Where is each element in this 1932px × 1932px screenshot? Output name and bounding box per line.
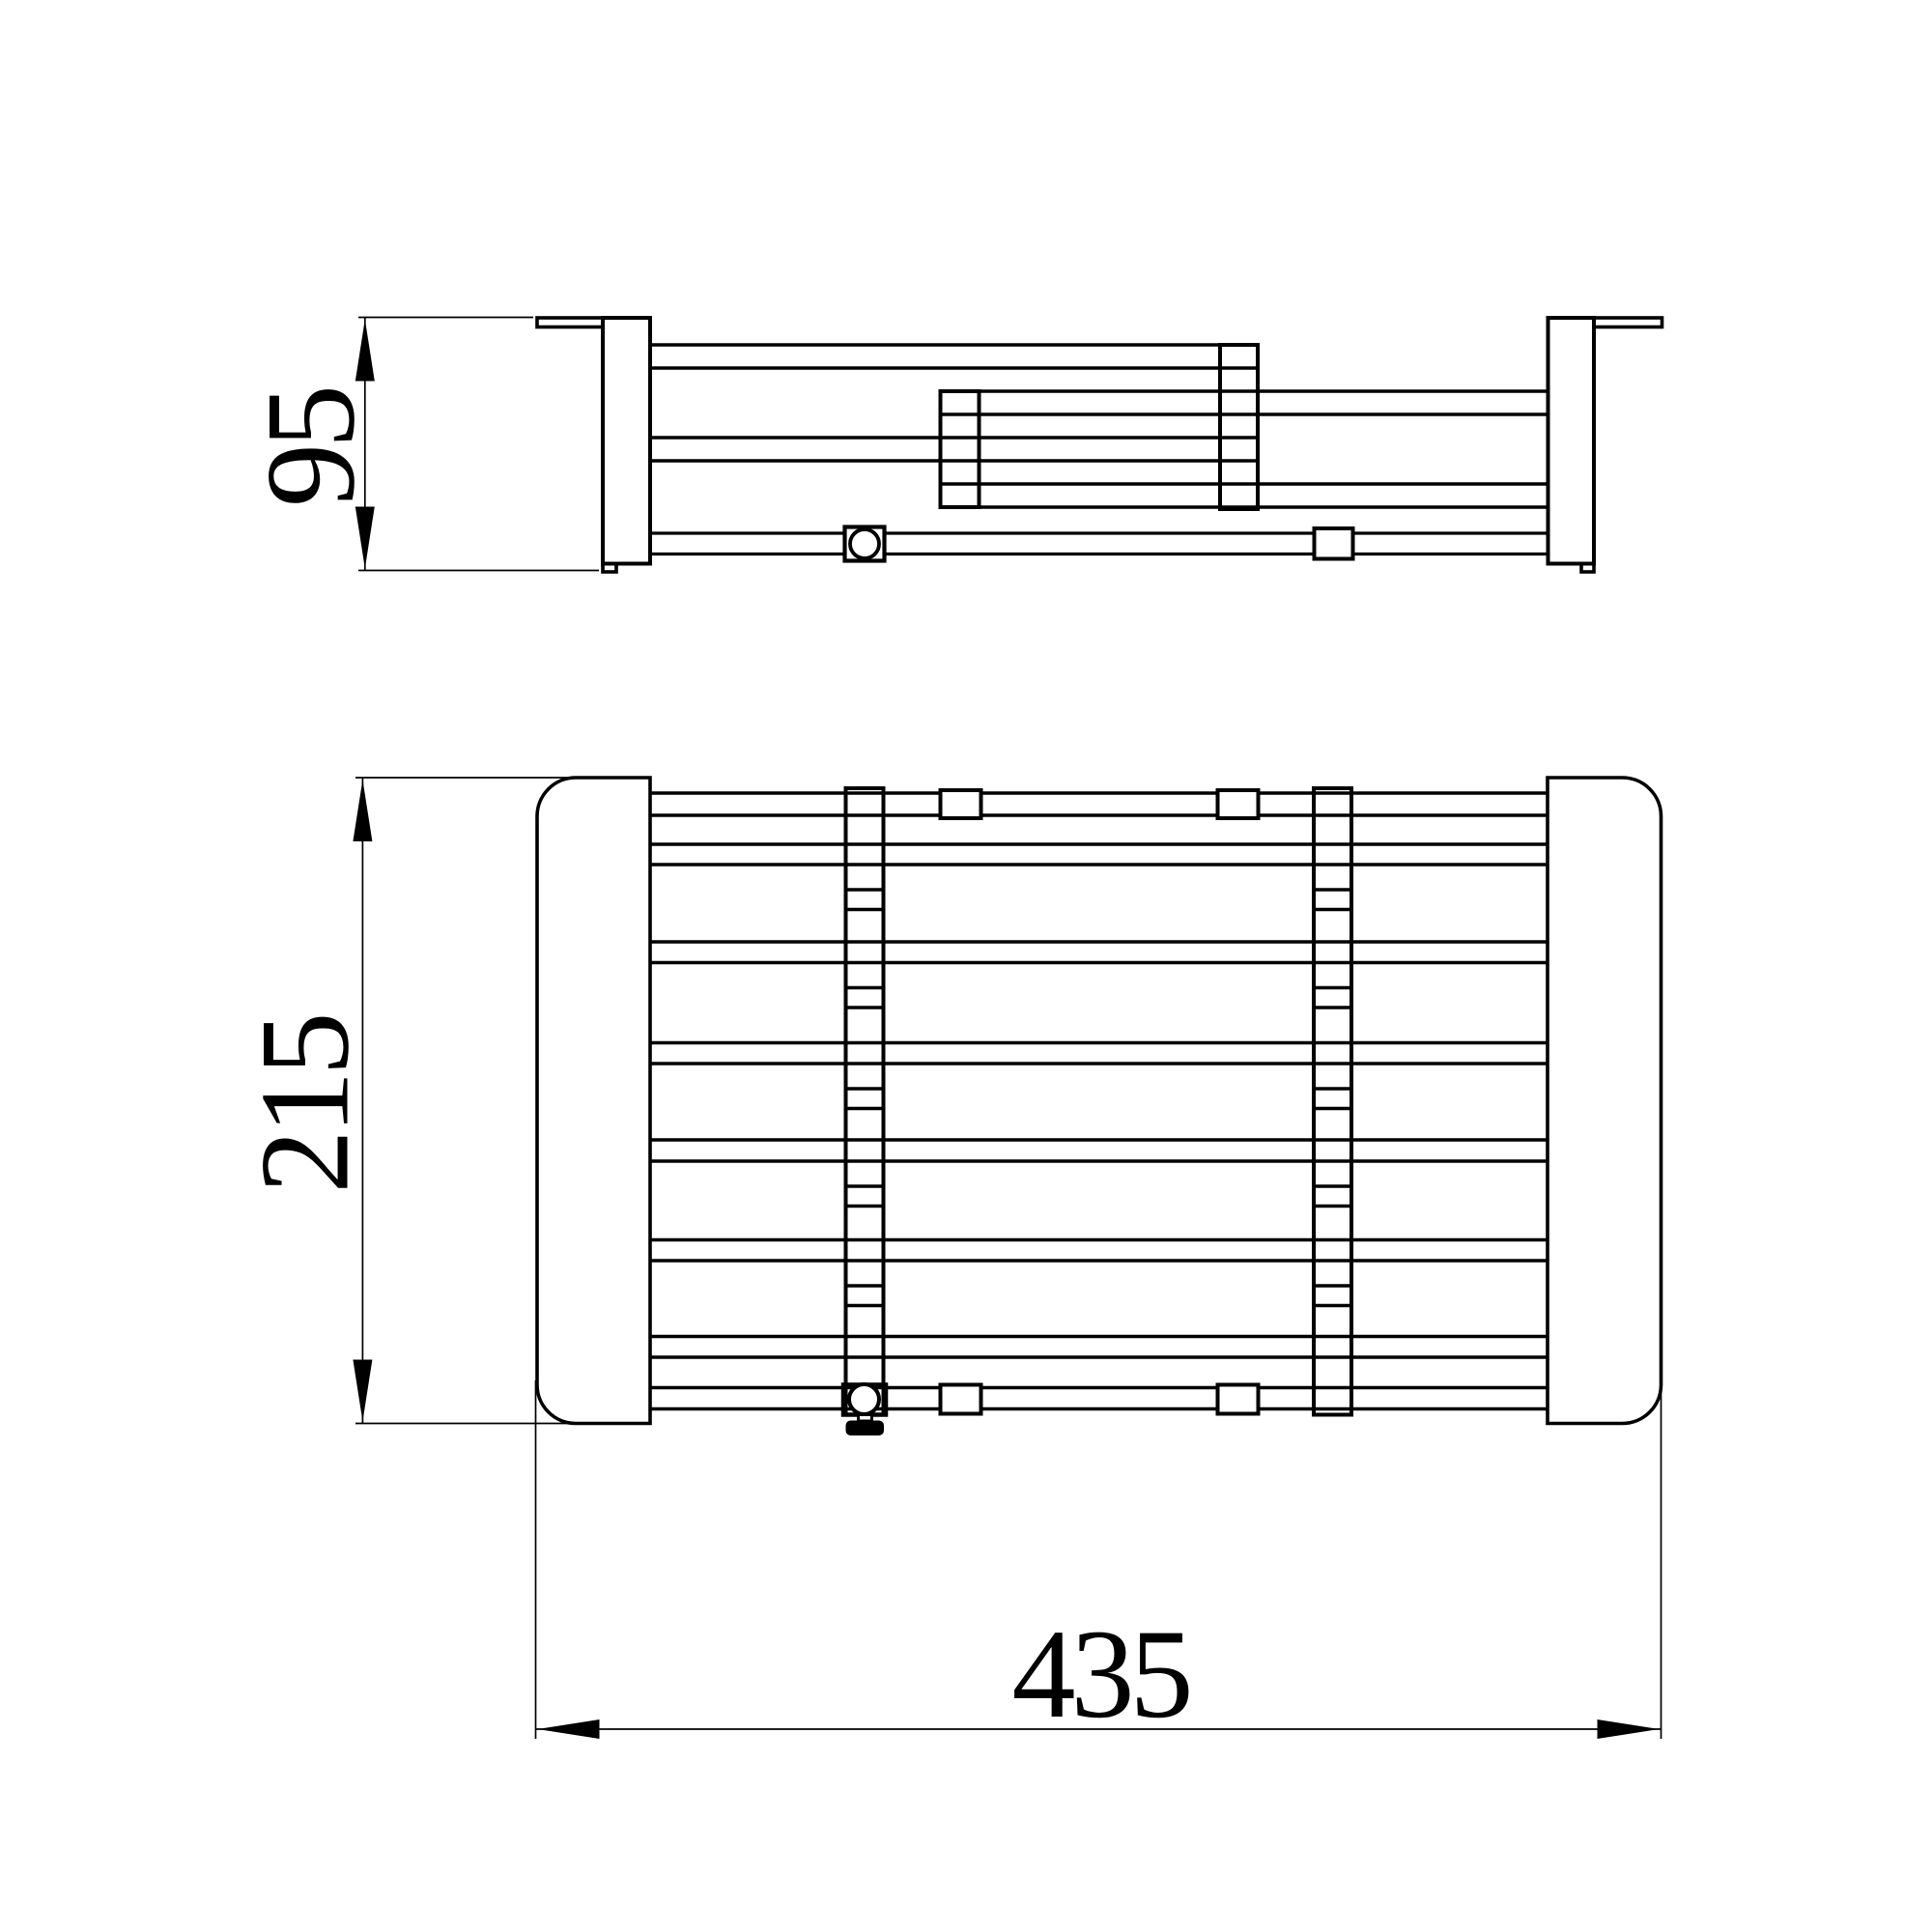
svg-text:435: 435 [1012,1603,1189,1745]
svg-text:95: 95 [240,389,382,507]
svg-text:215: 215 [234,1017,376,1194]
